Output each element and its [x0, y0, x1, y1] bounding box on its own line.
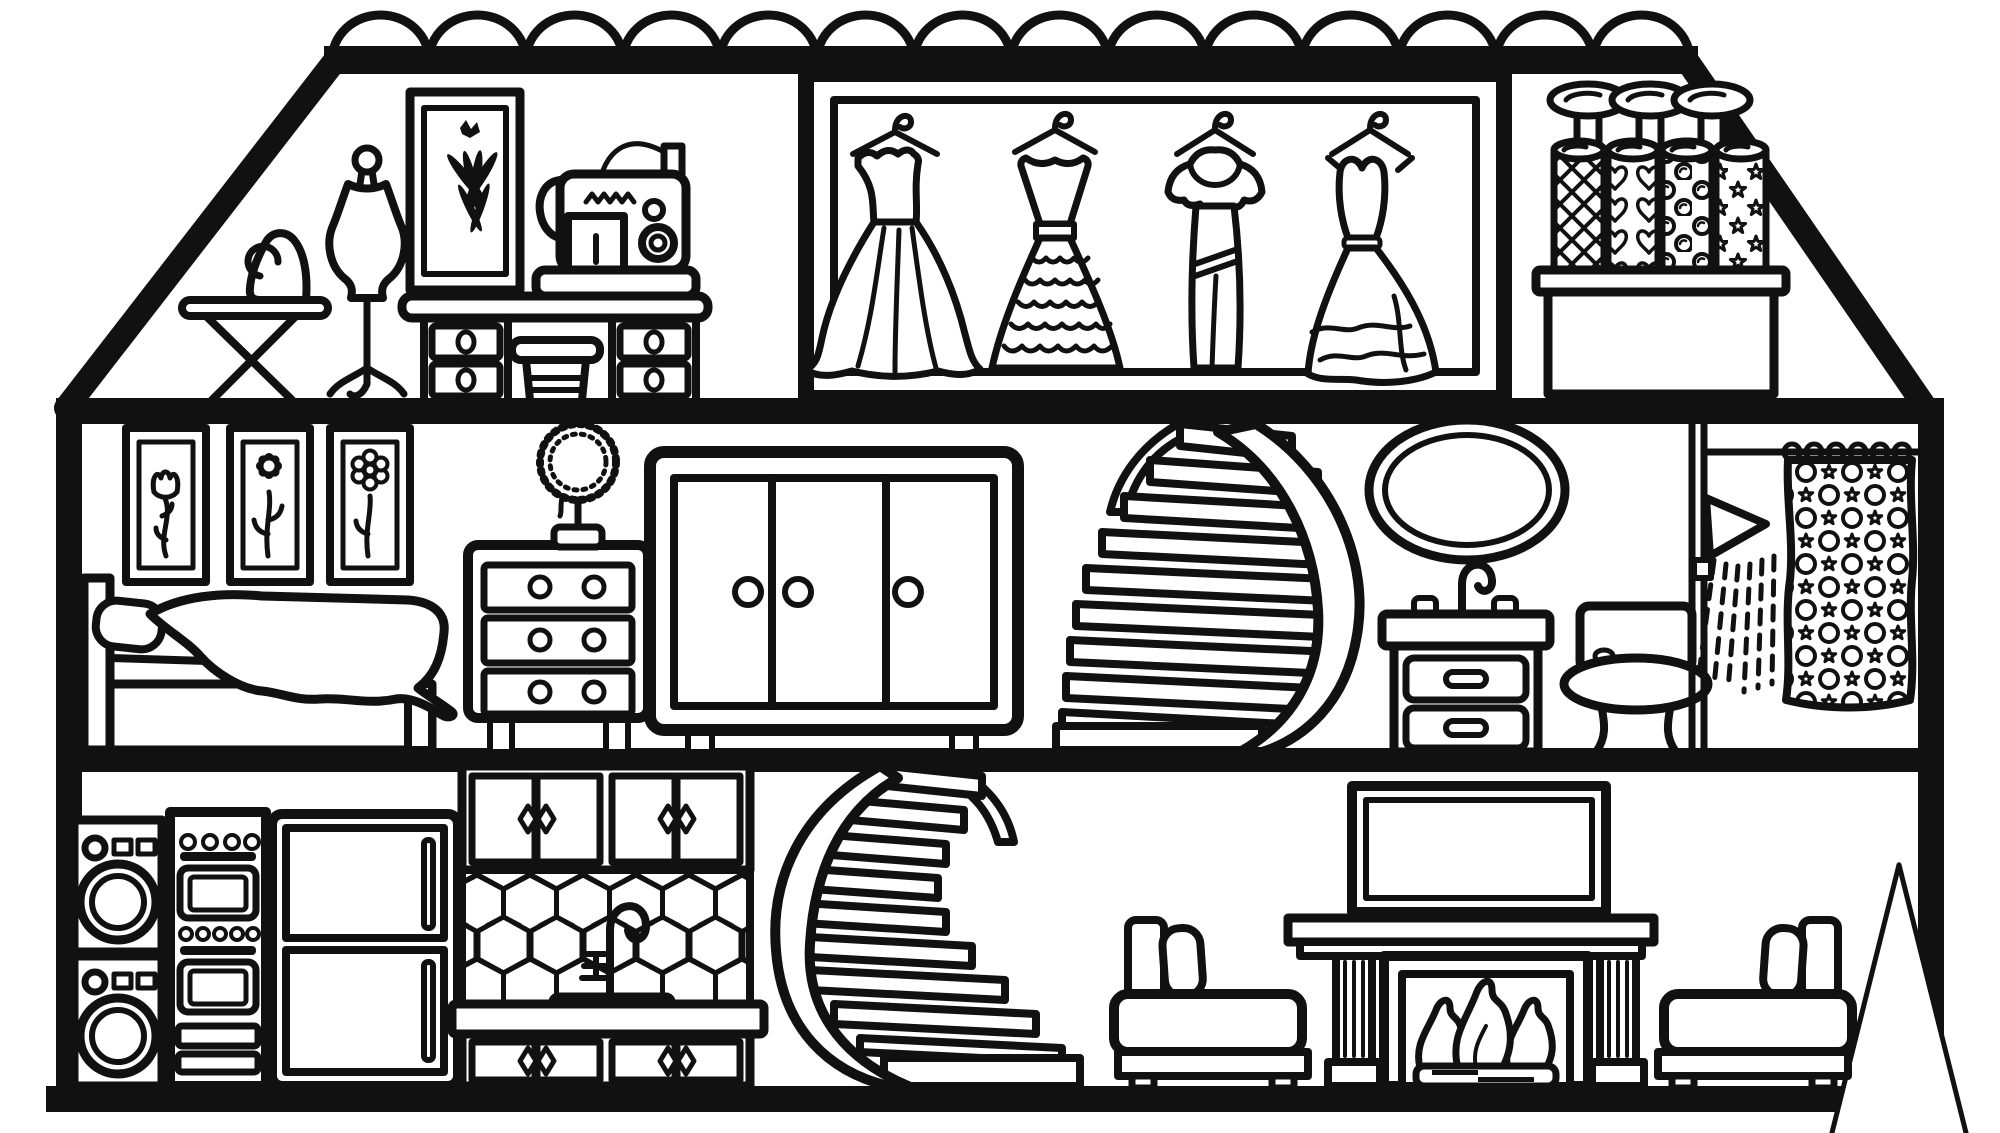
flower-picture-tulip: [126, 428, 206, 582]
shower-curtain: [1786, 460, 1913, 708]
double-oven: [170, 812, 266, 1086]
refrigerator: [272, 814, 458, 1086]
mantel-picture: [1352, 786, 1606, 912]
dress-closet: [806, 74, 1504, 398]
fireplace-column-right: [1592, 956, 1644, 1086]
fireplace-column-left: [1328, 956, 1380, 1086]
oval-mirror: [1369, 420, 1565, 560]
flower-picture-daisy: [230, 428, 310, 582]
upper-cabinets: [462, 766, 750, 870]
framed-botanical-picture: [410, 92, 520, 290]
dryer: [74, 956, 162, 1086]
kitchen: [452, 766, 764, 1086]
wardrobe: [650, 452, 1018, 752]
flower-picture-blossom: [330, 428, 410, 582]
laundry-appliances: [74, 812, 458, 1086]
pillow: [94, 599, 164, 652]
washer: [74, 820, 162, 952]
vase: [554, 527, 602, 547]
fireplace: [1288, 918, 1654, 1086]
roll-storage-bin: [1536, 270, 1786, 394]
lower-cabinets: [462, 1034, 750, 1086]
dollhouse-coloring-page: [0, 0, 2000, 1133]
